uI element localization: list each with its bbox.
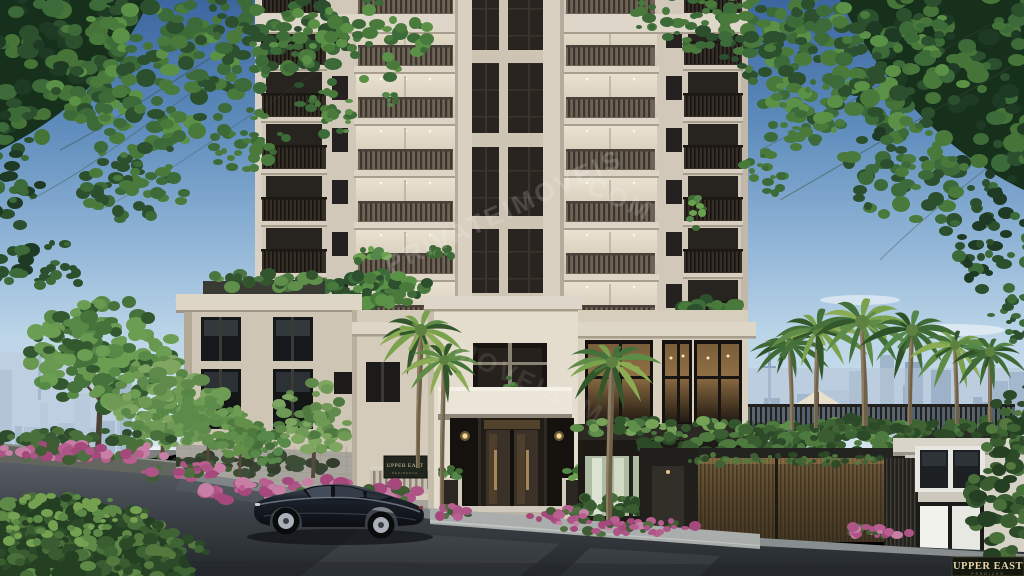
svg-text:RESIDENCE: RESIDENCE (392, 471, 419, 475)
svg-text:PERDIZES: PERDIZES (971, 572, 1005, 576)
svg-text:UPPER EAST: UPPER EAST (953, 561, 1023, 572)
